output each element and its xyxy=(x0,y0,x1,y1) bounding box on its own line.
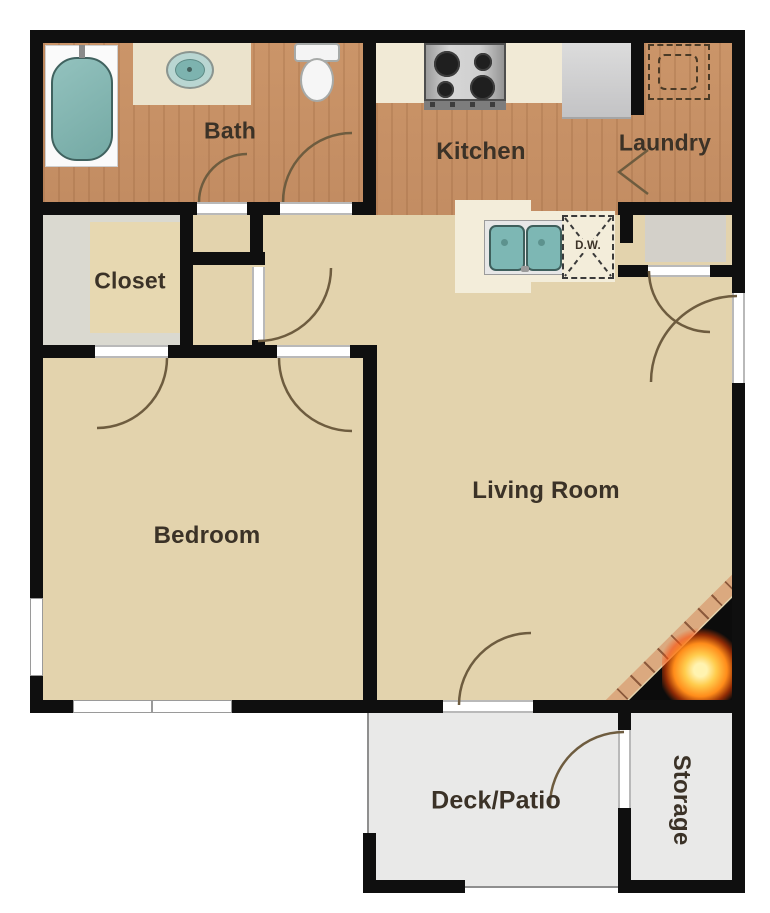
bedroom-label: Bedroom xyxy=(154,522,261,550)
hall-bedroom-door-swing xyxy=(279,358,352,431)
storage-door-swing xyxy=(550,732,624,806)
deck-patio-label: Deck/Patio xyxy=(431,787,561,816)
laundry-label: Laundry xyxy=(619,130,711,157)
living-room-label: Living Room xyxy=(472,477,620,505)
floor-plan: Bath Kitchen Laundry Closet Bedroom Livi… xyxy=(0,0,770,913)
kitchen-label: Kitchen xyxy=(436,138,525,166)
closet-bedroom-door-swing xyxy=(97,358,167,428)
bath-label: Bath xyxy=(204,118,256,145)
storage-label: Storage xyxy=(667,755,695,846)
linen-door-swing xyxy=(199,154,247,202)
bath-door-swing xyxy=(283,133,352,202)
alcove-door-swing xyxy=(649,271,710,332)
dishwasher-label: D.W. xyxy=(573,239,603,253)
hall-closet-door-swing xyxy=(258,268,331,341)
entry-door-swing xyxy=(651,296,737,382)
deck-door-swing xyxy=(459,633,531,705)
laundry-bifold-door xyxy=(619,150,648,194)
closet-label: Closet xyxy=(94,268,166,295)
